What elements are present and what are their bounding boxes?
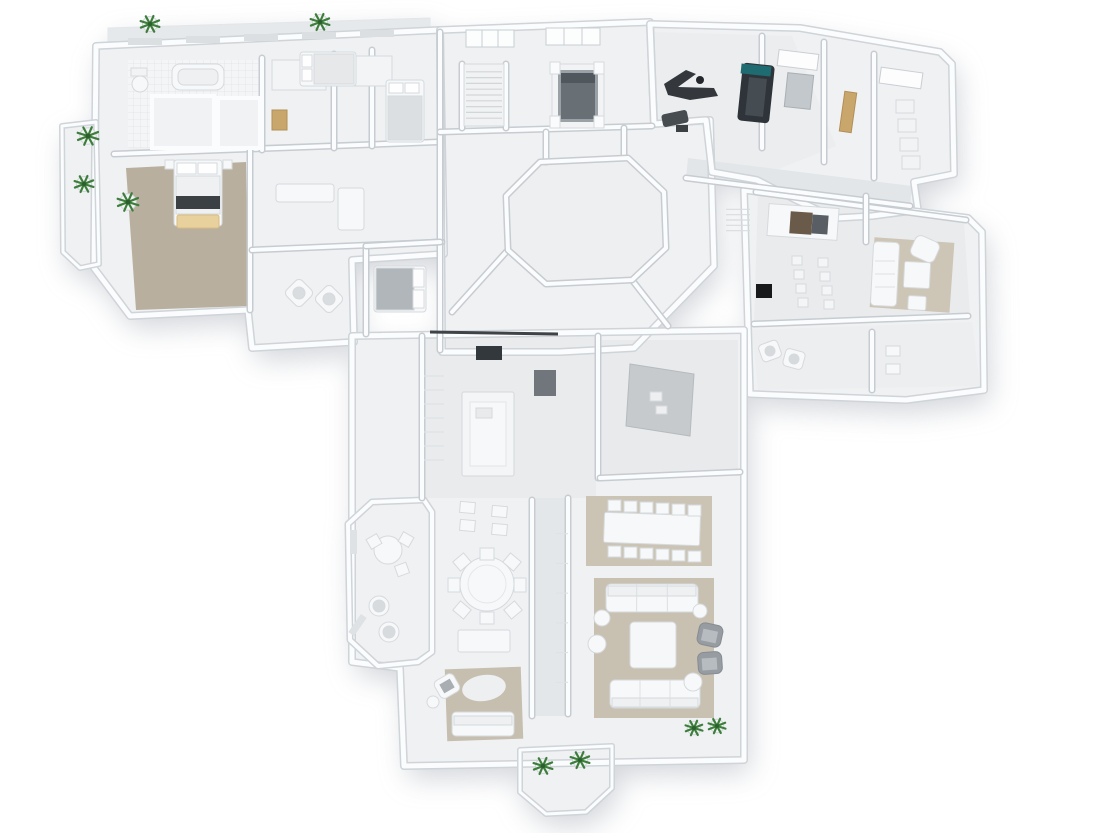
window-left-4 xyxy=(302,32,336,39)
living-side-table-hex xyxy=(588,635,606,653)
gym-rower-seat xyxy=(696,76,704,84)
office-item-2 xyxy=(656,406,667,414)
dining-chair-7 xyxy=(608,546,621,557)
family-shelf-6 xyxy=(820,272,830,281)
dining-chair-11 xyxy=(672,550,685,561)
window-left-2 xyxy=(186,36,220,43)
office-item-1 xyxy=(650,392,662,401)
master-throw-charcoal xyxy=(176,196,220,209)
wc-room xyxy=(218,98,260,148)
family-shelf-1 xyxy=(792,256,802,265)
kitchen-appliance-column xyxy=(534,370,556,396)
dining-table xyxy=(604,512,701,545)
elevator-pillar-3 xyxy=(550,116,560,128)
breakfast-chair-3 xyxy=(514,578,526,592)
bedroom2-pillow-2 xyxy=(413,290,424,308)
kitchen-stool-3 xyxy=(492,505,508,517)
family-counter-wood xyxy=(789,211,812,234)
veranda-chair-2-seat xyxy=(789,354,799,364)
lounge-chaise xyxy=(338,188,364,230)
living-side-table-1 xyxy=(594,610,610,626)
family-shelf-8 xyxy=(824,300,834,309)
wicker-chair-1-seat xyxy=(293,287,305,299)
dining-chair-3 xyxy=(640,502,653,513)
topright-appliance xyxy=(784,73,813,110)
dining-chair-6 xyxy=(688,505,701,516)
living-side-table-2 xyxy=(693,604,707,618)
family-counter-dark xyxy=(811,214,828,234)
dining-chair-9 xyxy=(640,548,653,559)
sitting-side-table xyxy=(427,696,439,708)
glass-threshold-dark xyxy=(430,332,558,334)
family-oven-black xyxy=(756,284,772,298)
elevator-pillar-4 xyxy=(594,116,604,128)
toilet-bowl xyxy=(132,76,148,92)
nightstand-2 xyxy=(223,160,232,169)
living-armchair-2-seat xyxy=(702,657,718,670)
bathtub-basin xyxy=(178,69,218,85)
window-mid-2 xyxy=(546,28,600,45)
bedroom2-duvet xyxy=(376,268,414,310)
guest-bed-v-duvet xyxy=(388,96,422,140)
guest-bed-v-pillow-2 xyxy=(405,83,419,93)
family-shelf-3 xyxy=(796,284,806,293)
window-left-3 xyxy=(244,34,278,41)
gym-weights xyxy=(676,125,688,132)
window-mid-1 xyxy=(466,30,514,47)
guest-bed-h-duvet xyxy=(314,54,354,84)
dining-chair-5 xyxy=(672,504,685,515)
dining-chair-1 xyxy=(608,500,621,511)
living-sofa-top-back xyxy=(608,586,696,596)
topright-closet-3 xyxy=(900,138,918,151)
breakfast-chair-5 xyxy=(480,612,494,624)
floor-plan-3d-render xyxy=(0,0,1098,833)
living-sofa-bottom-back xyxy=(612,698,698,707)
living-ottoman xyxy=(630,622,676,668)
family-shelf-7 xyxy=(822,286,832,295)
dining-chair-10 xyxy=(656,549,669,560)
kitchen-tv xyxy=(476,346,502,360)
veranda-fixture-2 xyxy=(886,364,900,374)
topright-closet-1 xyxy=(896,100,914,113)
shower-room xyxy=(152,96,214,148)
wicker-chair-2-seat xyxy=(323,293,335,305)
lounge-sofa xyxy=(276,184,334,202)
family-stool xyxy=(908,296,927,311)
guest-bed-h-pillow-2 xyxy=(302,69,312,81)
elevator-cab-top xyxy=(561,73,595,83)
breakfast-table-inner xyxy=(468,565,506,603)
vanity-gold xyxy=(272,110,287,130)
family-shelf-5 xyxy=(818,258,828,267)
bedroom2-pillow-1 xyxy=(413,269,424,287)
sideboard xyxy=(458,630,510,652)
bay-lounge-1-seat xyxy=(373,600,385,612)
master-pillow-2 xyxy=(198,163,217,174)
nightstand-1 xyxy=(165,160,174,169)
guest-bed-v-pillow-1 xyxy=(389,83,403,93)
kitchen-stool-4 xyxy=(492,523,508,535)
veranda-chair-1-seat xyxy=(765,346,775,356)
breakfast-chair-7 xyxy=(448,578,460,592)
master-pillow-1 xyxy=(177,163,196,174)
bay-window-slot-1 xyxy=(350,530,357,554)
living-side-table-3 xyxy=(684,673,702,691)
bay-lounge-2-seat xyxy=(383,626,395,638)
kitchen-stool-1 xyxy=(460,501,476,513)
elevator-pillar-1 xyxy=(550,62,560,74)
dining-chair-8 xyxy=(624,547,637,558)
hall-runner-floor xyxy=(534,498,568,716)
family-shelf-2 xyxy=(794,270,804,279)
dining-chair-4 xyxy=(656,503,669,514)
dining-chair-2 xyxy=(624,501,637,512)
dining-chair-12 xyxy=(688,551,701,562)
topright-closet-2 xyxy=(898,119,916,132)
guest-bed-h-pillow-1 xyxy=(302,55,312,67)
kitchen-sink xyxy=(476,408,492,418)
elevator-pillar-2 xyxy=(594,62,604,74)
floor-plan-canvas xyxy=(0,0,1098,833)
family-shelf-4 xyxy=(798,298,808,307)
topright-closet-4 xyxy=(902,156,920,169)
window-left-1 xyxy=(128,38,162,45)
sitting-sofa-back xyxy=(454,716,512,725)
window-left-5 xyxy=(360,30,394,37)
kitchen-stool-2 xyxy=(460,519,476,531)
master-bench-gold xyxy=(177,215,219,228)
toilet-tank xyxy=(131,68,147,76)
veranda-fixture-1 xyxy=(886,346,900,356)
family-coffee-table xyxy=(903,261,930,288)
breakfast-chair-1 xyxy=(480,548,494,560)
